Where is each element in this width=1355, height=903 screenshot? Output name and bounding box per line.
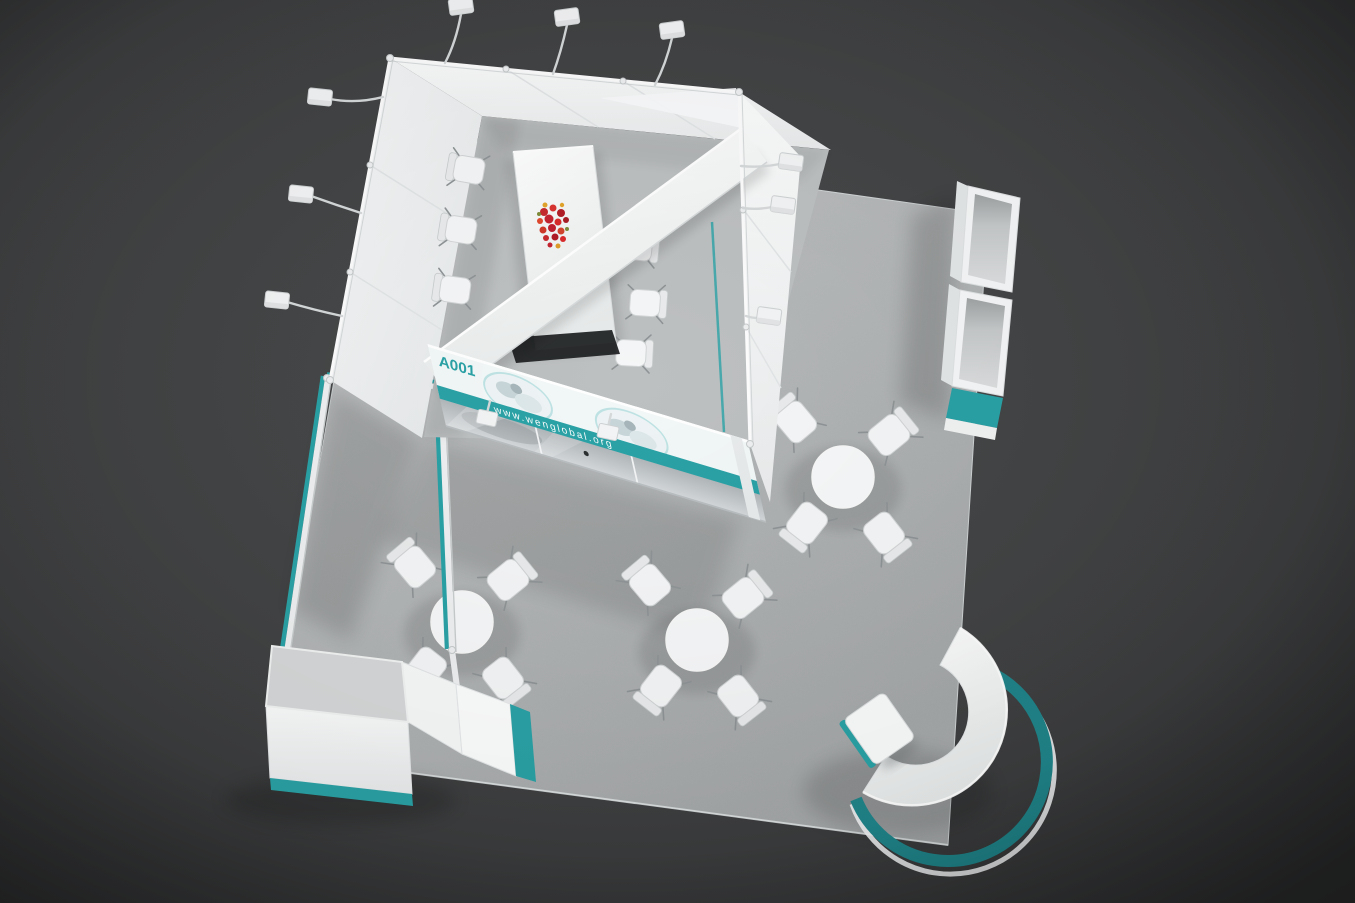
spotlight — [770, 195, 796, 214]
spotlight — [264, 291, 290, 309]
spotlight — [448, 0, 474, 16]
shelving-unit-1 — [950, 181, 1020, 292]
spotlight — [288, 185, 314, 203]
booth-render: A001 www.wenglobal.org — [0, 0, 1355, 903]
spotlight — [554, 7, 580, 26]
spotlight — [307, 88, 333, 106]
spotlight — [778, 152, 804, 171]
spotlight — [659, 20, 685, 39]
spotlight — [756, 306, 782, 325]
